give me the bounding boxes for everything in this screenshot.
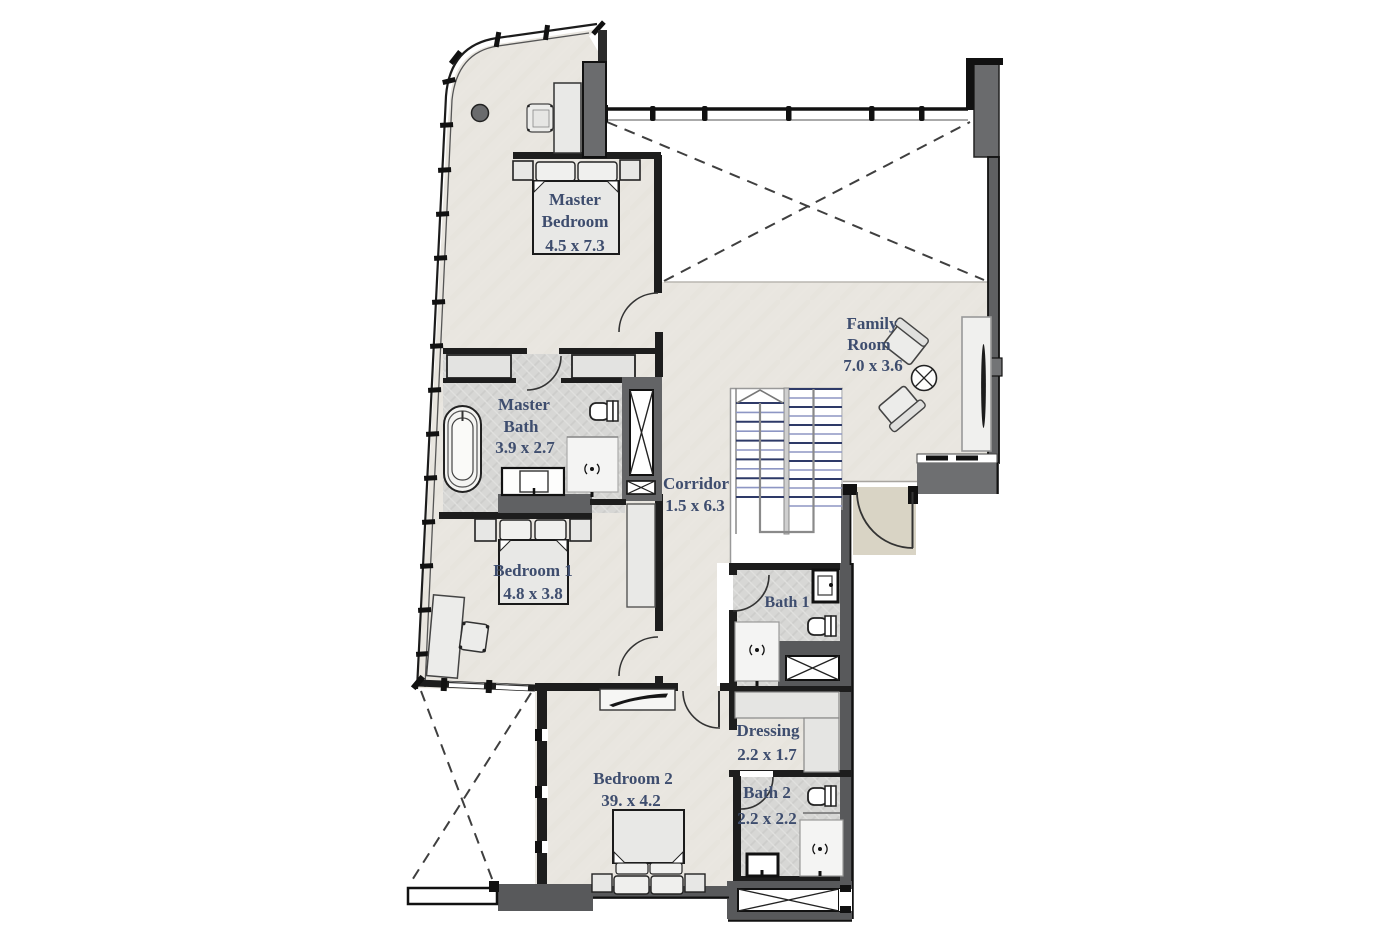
- svg-text:Bath 2: Bath 2: [743, 783, 791, 802]
- svg-text:Bedroom 2: Bedroom 2: [593, 769, 673, 788]
- svg-text:Corridor: Corridor: [663, 474, 730, 493]
- svg-text:Bath: Bath: [504, 417, 540, 436]
- svg-text:Master: Master: [498, 395, 550, 414]
- svg-text:Dressing: Dressing: [737, 721, 800, 740]
- svg-text:2.2 x 2.2: 2.2 x 2.2: [737, 809, 797, 828]
- svg-text:7.0 x 3.6: 7.0 x 3.6: [843, 356, 903, 375]
- svg-text:Family: Family: [847, 314, 898, 333]
- svg-text:39. x 4.2: 39. x 4.2: [601, 791, 661, 810]
- svg-text:4.8 x 3.8: 4.8 x 3.8: [503, 584, 563, 603]
- svg-text:Bedroom: Bedroom: [542, 212, 609, 231]
- svg-text:Room: Room: [847, 335, 890, 354]
- svg-text:Master: Master: [549, 190, 601, 209]
- svg-text:Bedroom 1: Bedroom 1: [493, 561, 573, 580]
- svg-text:Bath 1: Bath 1: [765, 594, 810, 611]
- svg-text:4.5 x 7.3: 4.5 x 7.3: [545, 236, 605, 255]
- svg-text:1.5 x 6.3: 1.5 x 6.3: [665, 496, 725, 515]
- svg-text:3.9 x 2.7: 3.9 x 2.7: [495, 438, 555, 457]
- svg-text:2.2 x 1.7: 2.2 x 1.7: [737, 745, 797, 764]
